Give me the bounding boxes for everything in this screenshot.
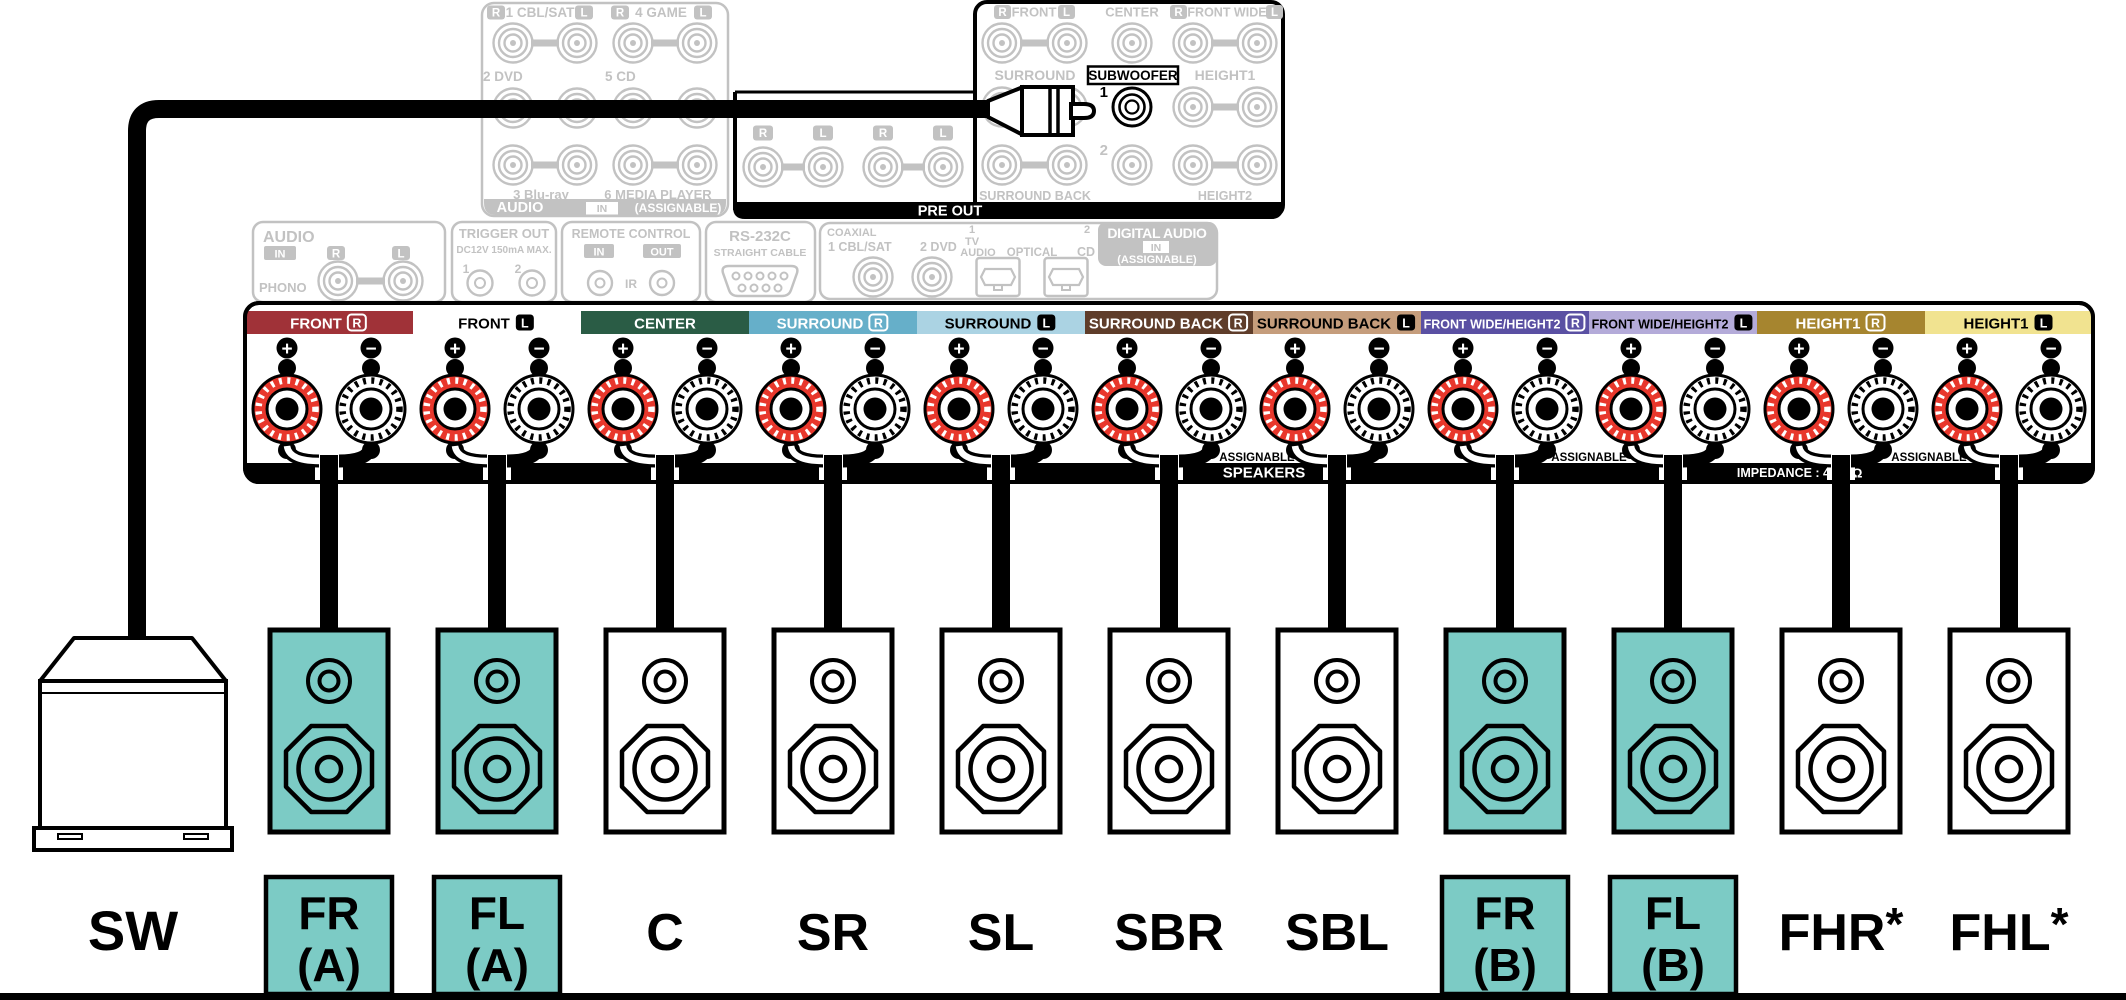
pre-out-ext-jack [864, 148, 903, 187]
db9-pin-hole [751, 285, 758, 292]
height1-label: HEIGHT1 [1195, 67, 1256, 83]
pre-out-ext-badge-label: R [759, 128, 768, 140]
opt2-num: 2 [1084, 224, 1090, 236]
digital-audio-box: COAXIAL 1 CBL/SAT 2 DVD 1 TV AUDIO OPTIC… [820, 222, 1217, 299]
trigger-jack-1 [468, 271, 493, 296]
polarity-glyph: − [1877, 339, 1888, 360]
speaker-fr-a: FR(A) [266, 630, 392, 994]
coaxial-jack-2 [913, 258, 952, 297]
trigger-jack-2 [520, 271, 545, 296]
phono-label: PHONO [259, 280, 307, 295]
l-badge-label: L [1271, 7, 1278, 19]
input-label: 5 CD [605, 69, 636, 84]
band-label: FRONT WIDE/HEIGHT2 [1424, 318, 1561, 332]
pre-out-jack [1048, 24, 1087, 63]
impedance-label: IMPEDANCE : 4 [1737, 466, 1830, 480]
phono-jack-l [384, 262, 423, 301]
pre-out-ext-badge-label: L [939, 128, 946, 140]
rs232c-subtitle: STRAIGHT CABLE [714, 247, 807, 259]
trigger-num1: 1 [463, 262, 470, 276]
phono-title: AUDIO [263, 229, 315, 246]
band-badge-label: L [1043, 317, 1051, 331]
trigger-out-box: TRIGGER OUT DC12V 150mA MAX. 1 2 [452, 222, 556, 302]
speaker-terminal-strip: FRONTRFRONTLCENTERSURROUNDRSURROUNDLSURR… [245, 303, 2093, 635]
speaker-caption: FHL* [1950, 898, 2069, 962]
band-badge-label: L [2040, 317, 2048, 331]
jack-pair-bar [651, 162, 679, 169]
band-surround-r: SURROUNDR [749, 311, 917, 334]
pre-out-bar [733, 202, 1283, 219]
input-label: 2 DVD [483, 69, 523, 84]
polarity-glyph: − [1205, 339, 1216, 360]
polarity-glyph: − [533, 339, 544, 360]
pre-out-ext-jack [924, 148, 963, 187]
remote-jack-out [658, 279, 667, 288]
band-surround-back-l: SURROUND BACKL [1253, 311, 1421, 334]
speaker-caption-line: FR [298, 887, 359, 939]
pre-out-ext-badge-label: R [879, 128, 888, 140]
audio-in-jack [558, 146, 597, 185]
speaker-fhl: FHL* [1950, 630, 2069, 962]
subwoofer-pre-out-jack [1113, 88, 1151, 126]
out-badge-label: OUT [650, 247, 674, 259]
coax1-label: 1 CBL/SAT [828, 240, 892, 254]
pre-out-jack [983, 24, 1022, 63]
band-badge-label: L [1402, 317, 1410, 331]
polarity-glyph: + [785, 339, 796, 360]
speaker-caption-line: (A) [297, 939, 361, 991]
speaker-caption: SBL [1285, 904, 1389, 962]
phono-jack-r [319, 262, 358, 301]
band-badge-label: L [1740, 317, 1748, 331]
band-label: FRONT WIDE/HEIGHT2 [1592, 318, 1729, 332]
polarity-glyph: + [1961, 339, 1972, 360]
audio-in-jack [678, 24, 717, 63]
assignable-label: ASSIGNABLE [1551, 452, 1627, 464]
polarity-glyph: + [617, 339, 628, 360]
speaker-fhr: FHR* [1779, 630, 1904, 962]
speaker-connection-diagram: R 1 CBL/SAT L R 4 GAME L 2 DVD 5 CD 3 Bl… [0, 0, 2126, 1000]
optical-jacks [977, 258, 1088, 296]
db9-pin-hole [757, 273, 764, 280]
polarity-glyph: − [1037, 339, 1048, 360]
band-badge-label: R [352, 317, 361, 331]
trigger-title: TRIGGER OUT [459, 226, 549, 241]
speaker-caption-line: (B) [1473, 939, 1537, 991]
trigger-jack-1 [475, 278, 485, 288]
speaker-caption-line: FL [469, 887, 525, 939]
assignable-note: (ASSIGNABLE) [1117, 254, 1197, 266]
center-label: CENTER [1105, 5, 1159, 20]
pre-out-jack [1174, 146, 1213, 185]
pre-out-jack [1113, 146, 1152, 185]
band-label: FRONT [290, 316, 342, 333]
polarity-glyph: − [1709, 339, 1720, 360]
speakers-row: FR(A)FL(A)CSRSLSBRSBLFR(B)FL(B)FHR*FHL* [266, 630, 2069, 994]
r-badge-label: R [1174, 7, 1183, 19]
db9-pin-hole [745, 273, 752, 280]
input-label: 6 MEDIA PLAYER [604, 187, 712, 202]
jack-pair-bar [651, 40, 679, 47]
jack-pair-bar [901, 164, 925, 171]
rca-plug-body [1022, 87, 1073, 135]
audio-footer-title: AUDIO [497, 200, 544, 216]
db9-holes [733, 273, 788, 292]
subwoofer-1-number: 1 [1100, 84, 1108, 101]
polarity-glyph: − [365, 339, 376, 360]
polarity-glyph: + [281, 339, 292, 360]
band-label: SURROUND [945, 316, 1032, 333]
band-front-l: FRONTL [413, 311, 581, 334]
jack-pair-bar [531, 162, 559, 169]
l-badge-label: L [580, 8, 587, 20]
band-height1-l: HEIGHT1L [1925, 311, 2093, 334]
coaxial-jack-1 [854, 258, 893, 297]
speaker-caption: SBR [1114, 904, 1224, 962]
pre-out-jack [1238, 24, 1277, 63]
polarity-glyph: + [1625, 339, 1636, 360]
bottom-rule [0, 993, 2126, 1000]
remote-jack-in [596, 279, 605, 288]
subwoofer-label: SUBWOOFER [1088, 68, 1177, 83]
band-label: SURROUND [777, 316, 864, 333]
speaker-caption-line: (A) [465, 939, 529, 991]
pre-out-jack [1238, 88, 1277, 127]
input-label: 4 GAME [635, 5, 687, 20]
assignable-label: ASSIGNABLE [1219, 452, 1295, 464]
pre-out-ext-jack [744, 148, 783, 187]
audio-in-row1-labels: R 1 CBL/SAT L R 4 GAME L [487, 5, 712, 20]
db9-pin-hole [733, 273, 740, 280]
audio-in-jack [494, 24, 533, 63]
speaker-caption-line: FL [1645, 887, 1701, 939]
remote-jack-out [650, 271, 674, 295]
speaker-sr: SR [774, 630, 892, 962]
speaker-caption-line: FR [1474, 887, 1535, 939]
in-badge-label: IN [594, 247, 605, 259]
band-badge-label: R [1571, 317, 1580, 331]
db9-connector [723, 266, 798, 296]
jack-pair-bar [356, 278, 385, 285]
polarity-glyph: − [701, 339, 712, 360]
l-badge-label: L [397, 249, 404, 261]
speaker-sl: SL [942, 630, 1060, 962]
pre-out-jack [1048, 146, 1087, 185]
jack-pair-bar [1211, 162, 1239, 169]
coax2-label: 2 DVD [920, 240, 957, 254]
polarity-glyph: − [1373, 339, 1384, 360]
band-badge-label: R [874, 317, 883, 331]
pre-out-ext-jack [804, 148, 843, 187]
pre-out-ext-badge-label: L [819, 128, 826, 140]
band-center: CENTER [581, 311, 749, 334]
trigger-subtitle: DC12V 150mA MAX. [456, 245, 551, 256]
speaker-caption: SL [968, 904, 1034, 962]
jack-pair-bar [531, 40, 559, 47]
digital-audio-title: DIGITAL AUDIO [1107, 225, 1207, 241]
band-front-wide-height2-l: FRONT WIDE/HEIGHT2L [1589, 311, 1757, 334]
remote-control-box: REMOTE CONTROL IN OUT IR [562, 222, 700, 302]
band-label: HEIGHT1 [1963, 316, 2028, 333]
front-wide-label: FRONT WIDE [1187, 6, 1266, 20]
band-label: SURROUND BACK [1089, 316, 1223, 333]
optical-jack [977, 258, 1020, 296]
band-front-wide-height2-r: FRONT WIDE/HEIGHT2R [1421, 311, 1589, 334]
front-label: FRONT [1012, 5, 1057, 20]
speakers-bar-label: SPEAKERS [1223, 465, 1306, 482]
band-badge-label: R [1234, 317, 1243, 331]
pre-out-jack [1174, 88, 1213, 127]
speaker-sbr: SBR [1110, 630, 1228, 962]
band-height1-r: HEIGHT1R [1757, 311, 1925, 334]
coaxial-label: COAXIAL [827, 227, 877, 239]
pre-out-jack [1238, 146, 1277, 185]
band-front-r: FRONTR [245, 311, 413, 334]
optical-jack [1045, 258, 1088, 296]
r-badge-label: R [616, 8, 625, 20]
band-label: CENTER [634, 316, 696, 333]
pre-out-bar-label: PRE OUT [918, 204, 983, 220]
polarity-glyph: + [1121, 339, 1132, 360]
polarity-glyph: + [1793, 339, 1804, 360]
jack-pair-bar [1211, 104, 1239, 111]
speaker-fl-a: FL(A) [434, 630, 560, 994]
band-label: HEIGHT1 [1795, 316, 1860, 333]
r-badge-label: R [492, 8, 501, 20]
audio-in-jack [494, 146, 533, 185]
band-badge-label: R [1871, 317, 1880, 331]
audio-in-jack [614, 24, 653, 63]
rca-plug-pin [1071, 104, 1094, 118]
db9-pin-hole [739, 285, 746, 292]
db9-pin-hole [763, 285, 770, 292]
pre-out-jack [1174, 24, 1213, 63]
speaker-caption-line: (B) [1641, 939, 1705, 991]
r-badge-label: R [998, 7, 1007, 19]
input-label: 1 CBL/SAT [506, 5, 576, 20]
surround-label: SURROUND [995, 67, 1076, 83]
polarity-glyph: + [1457, 339, 1468, 360]
remote-title: REMOTE CONTROL [572, 227, 691, 241]
polarity-glyph: − [2045, 339, 2056, 360]
band-label: SURROUND BACK [1257, 316, 1391, 333]
in-badge-label: IN [275, 249, 286, 261]
assignable-note: (ASSIGNABLE) [635, 201, 722, 215]
subwoofer-2-number: 2 [1100, 142, 1108, 159]
trigger-jack-2 [527, 278, 537, 288]
trigger-num2: 2 [515, 262, 522, 276]
l-badge-label: L [699, 8, 706, 20]
subwoofer-foot [184, 834, 208, 839]
jack-pair-bar [1020, 40, 1049, 47]
speaker-caption: SR [797, 904, 869, 962]
polarity-glyph: + [953, 339, 964, 360]
audio-in-jack [558, 24, 597, 63]
speaker-c: C [606, 630, 724, 962]
in-badge-label: IN [1151, 242, 1162, 254]
db9-pin-hole [769, 273, 776, 280]
speaker-caption: C [646, 904, 684, 962]
subwoofer-caption: SW [88, 899, 178, 962]
audio-in-jack [614, 146, 653, 185]
speaker-sbl: SBL [1278, 630, 1396, 962]
jack-pair-bar [781, 164, 805, 171]
polarity-glyph: + [449, 339, 460, 360]
band-label: FRONT [458, 316, 510, 333]
subwoofer-speaker: SW [34, 638, 232, 962]
pre-out-jack [983, 146, 1022, 185]
l-badge-label: L [1063, 7, 1070, 19]
band-surround-l: SURROUNDL [917, 311, 1085, 334]
io-row: AUDIO IN R L PHONO TRIGGER OUT DC12V 150… [253, 222, 1217, 302]
polarity-glyph: − [1541, 339, 1552, 360]
jack-pair-bar [1020, 162, 1049, 169]
speaker-fr-b: FR(B) [1442, 630, 1568, 994]
ir-label: IR [625, 277, 637, 291]
db9-pin-hole [781, 273, 788, 280]
polarity-glyph: − [869, 339, 880, 360]
opt1-num: 1 [969, 224, 975, 236]
remote-jack-in [588, 271, 612, 295]
rs232c-box: RS-232C STRAIGHT CABLE [706, 222, 815, 302]
subwoofer-top [40, 638, 226, 681]
surround-back-label: SURROUND BACK [979, 189, 1091, 203]
in-badge-label: IN [597, 203, 608, 215]
subwoofer-foot [58, 834, 82, 839]
assignable-label: ASSIGNABLE [1891, 452, 1967, 464]
jack-pair-bar [1211, 40, 1239, 47]
rs232c-title: RS-232C [729, 228, 791, 245]
speaker-caption: FHR* [1779, 898, 1904, 962]
speaker-fl-b: FL(B) [1610, 630, 1736, 994]
db9-pin-hole [775, 285, 782, 292]
polarity-glyph: + [1289, 339, 1300, 360]
channel-bands: FRONTRFRONTLCENTERSURROUNDRSURROUNDLSURR… [245, 311, 2093, 334]
band-badge-label: L [521, 317, 529, 331]
pre-out-jack [1113, 24, 1152, 63]
r-badge-label: R [332, 249, 341, 261]
audio-in-jack [678, 146, 717, 185]
height2-label: HEIGHT2 [1198, 189, 1252, 203]
subwoofer-body [40, 681, 226, 828]
band-surround-back-r: SURROUND BACKR [1085, 311, 1253, 334]
